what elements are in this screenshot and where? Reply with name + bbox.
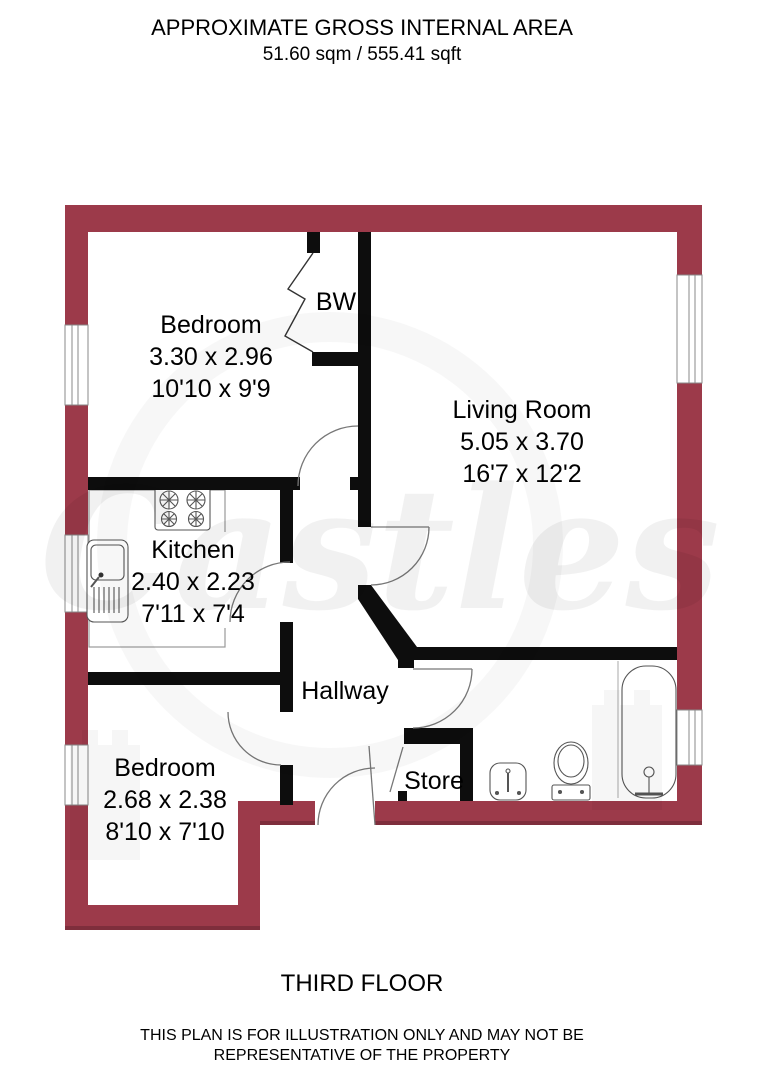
living-room-imperial: 16'7 x 12'2 <box>462 460 581 488</box>
basin-icon <box>490 763 526 800</box>
door-arc-bedroom-top <box>298 426 358 486</box>
wardrobe-label: BW <box>316 288 357 316</box>
bedroom-top-metric: 3.30 x 2.96 <box>149 343 273 371</box>
disclaimer-line-1: THIS PLAN IS FOR ILLUSTRATION ONLY AND M… <box>0 1026 724 1046</box>
bedroom-bottom-name: Bedroom <box>114 754 215 782</box>
bedroom-top-imperial: 10'10 x 9'9 <box>151 375 270 403</box>
window-bathroom <box>677 710 702 765</box>
bifold-door-wardrobe <box>285 253 313 352</box>
kitchen-name: Kitchen <box>151 536 234 564</box>
disclaimer: THIS PLAN IS FOR ILLUSTRATION ONLY AND M… <box>0 1026 724 1066</box>
bathtub-icon <box>622 666 676 798</box>
window-bedroom-bottom <box>65 745 88 805</box>
hallway-label: Hallway <box>301 677 389 705</box>
window-bedroom-top <box>65 325 88 405</box>
toilet-icon <box>552 742 590 800</box>
living-room-metric: 5.05 x 3.70 <box>460 428 584 456</box>
door-arc-entrance <box>318 746 375 825</box>
floorplan-drawing: Bedroom 3.30 x 2.96 10'10 x 9'9 BW Livin… <box>0 0 764 1080</box>
door-arc-living-room <box>371 527 429 585</box>
room-label-bedroom-top: Bedroom 3.30 x 2.96 10'10 x 9'9 <box>149 311 273 403</box>
living-room-name: Living Room <box>453 396 592 424</box>
floor-title: THIRD FLOOR <box>0 969 724 999</box>
gross-area-value: 51.60 sqm / 555.41 sqft <box>0 42 724 67</box>
kitchen-imperial: 7'11 x 7'4 <box>141 600 245 628</box>
window-kitchen <box>65 535 88 612</box>
bedroom-bottom-metric: 2.68 x 2.38 <box>103 786 227 814</box>
store-label: Store <box>404 767 464 795</box>
room-label-bedroom-bottom: Bedroom 2.68 x 2.38 8'10 x 7'10 <box>103 754 227 846</box>
hob-icon <box>155 487 210 530</box>
bedroom-top-name: Bedroom <box>160 311 261 339</box>
kitchen-sink-icon <box>87 540 128 622</box>
bedroom-bottom-imperial: 8'10 x 7'10 <box>105 818 224 846</box>
door-leaf-store <box>390 747 403 792</box>
room-label-living-room: Living Room 5.05 x 3.70 16'7 x 12'2 <box>453 396 592 488</box>
floorplan-page: APPROXIMATE GROSS INTERNAL AREA 51.60 sq… <box>0 0 764 1080</box>
window-living-room <box>677 275 702 383</box>
kitchen-metric: 2.40 x 2.23 <box>131 568 255 596</box>
gross-area-title: APPROXIMATE GROSS INTERNAL AREA <box>0 14 724 41</box>
door-arc-bedroom-bottom <box>228 712 281 765</box>
door-arc-bathroom <box>413 669 472 728</box>
disclaimer-line-2: REPRESENTATIVE OF THE PROPERTY <box>0 1046 724 1066</box>
